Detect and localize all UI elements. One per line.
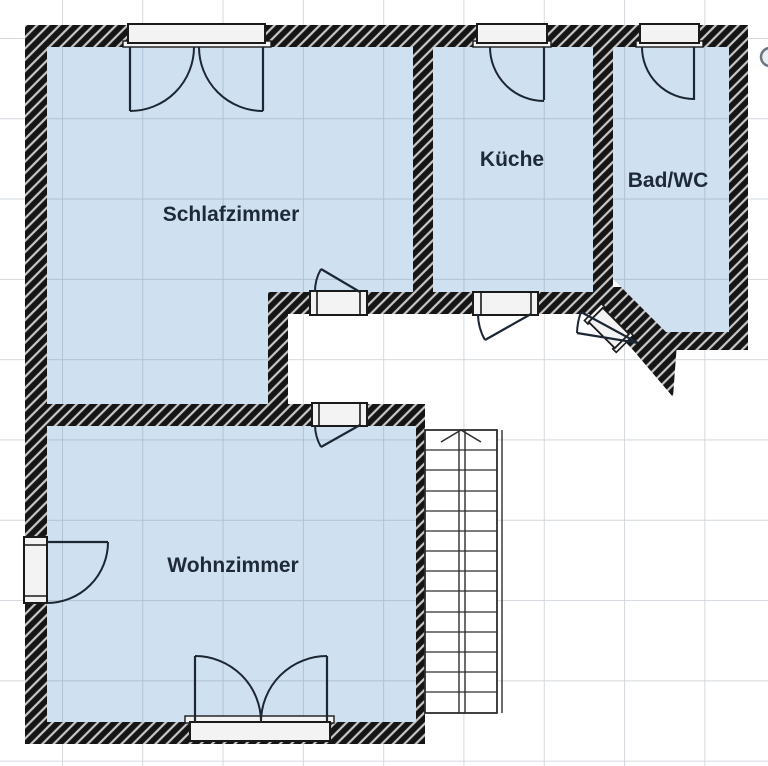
door-frame: [310, 291, 367, 315]
floor-plan-canvas: Schlafzimmer Küche Bad/WC Wohnzimmer: [0, 0, 768, 766]
door-frame: [473, 292, 538, 315]
door-frame: [24, 537, 47, 603]
wall-outer-right: [729, 25, 748, 350]
room-label-wohnzimmer: Wohnzimmer: [167, 554, 298, 577]
room-label-badwc: Bad/WC: [628, 169, 709, 192]
wall-wohnzimmer-right-thin: [416, 404, 425, 744]
grid-overlay: [0, 0, 768, 766]
window-frame: [640, 24, 699, 43]
window-frame: [477, 24, 547, 43]
staircase: [425, 430, 502, 713]
room-label-kueche: Küche: [480, 148, 544, 171]
wall-kueche-badwc: [593, 25, 613, 312]
door-frame: [312, 403, 367, 426]
wall-outer-left: [25, 25, 47, 744]
window-frame: [128, 24, 265, 43]
door-frame: [190, 722, 330, 741]
room-label-schlafzimmer: Schlafzimmer: [163, 203, 300, 226]
watermark-mark: [761, 48, 768, 66]
floor-plan-page: Schlafzimmer Küche Bad/WC Wohnzimmer: [0, 0, 768, 766]
wall-schlafzimmer-kueche: [413, 25, 433, 314]
